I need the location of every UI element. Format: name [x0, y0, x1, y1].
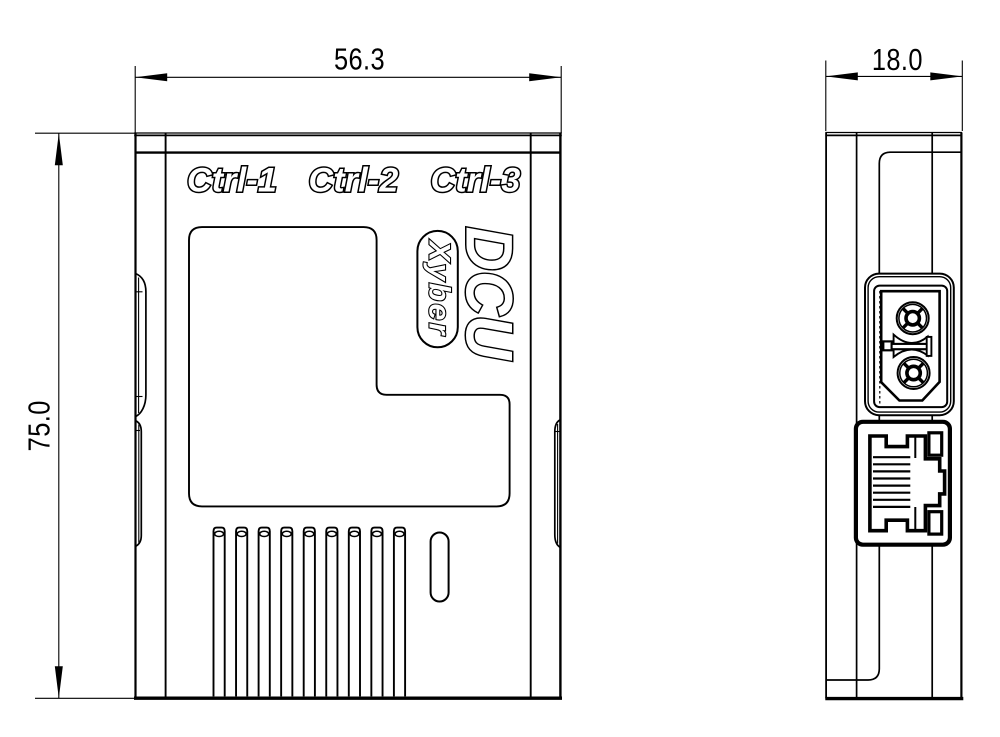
- svg-text:DCU: DCU: [453, 227, 527, 362]
- svg-text:18.0: 18.0: [872, 43, 923, 78]
- svg-text:Ctrl-1: Ctrl-1: [187, 162, 277, 200]
- svg-text:75.0: 75.0: [22, 400, 57, 451]
- svg-text:Ctrl-3: Ctrl-3: [431, 162, 521, 200]
- svg-text:Xyber: Xyber: [423, 239, 456, 337]
- svg-text:56.3: 56.3: [334, 42, 385, 77]
- svg-text:Ctrl-2: Ctrl-2: [309, 162, 399, 200]
